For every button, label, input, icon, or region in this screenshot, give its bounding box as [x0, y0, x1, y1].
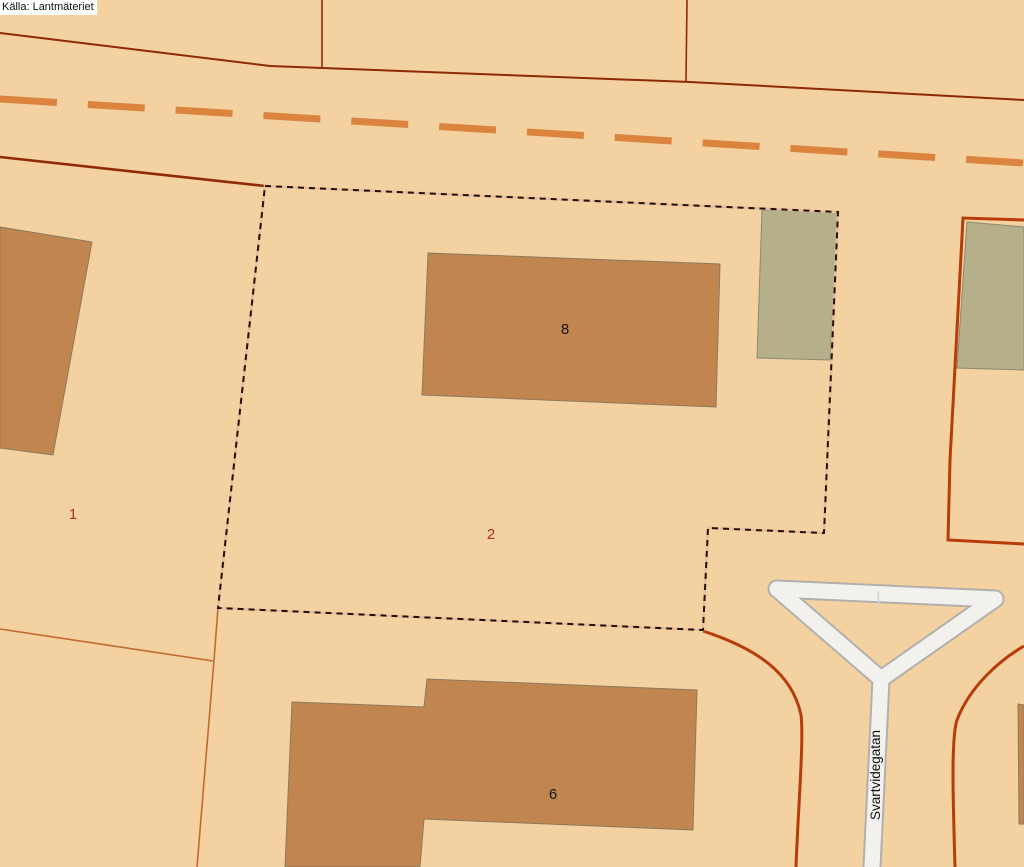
building-edge-strip [1018, 704, 1024, 824]
map-canvas[interactable]: 1 2 8 6 Svartvidegatan [0, 0, 1024, 867]
map-source-attribution: Källa: Lantmäteriet [0, 0, 97, 15]
outbuilding-east [957, 222, 1024, 370]
parcel-boundary-vertical-2 [686, 0, 687, 81]
map-viewport[interactable]: 1 2 8 6 Svartvidegatan Källa: Lantmäteri… [0, 0, 1024, 867]
outbuilding-west [757, 210, 838, 360]
street-name-label: Svartvidegatan [868, 730, 883, 820]
road-segment-joint [878, 591, 879, 607]
building-number-8: 8 [561, 321, 569, 338]
parcel-number-1: 1 [69, 506, 77, 523]
parcel-number-2: 2 [487, 526, 495, 543]
building-8 [422, 253, 720, 407]
building-number-6: 6 [549, 786, 557, 803]
